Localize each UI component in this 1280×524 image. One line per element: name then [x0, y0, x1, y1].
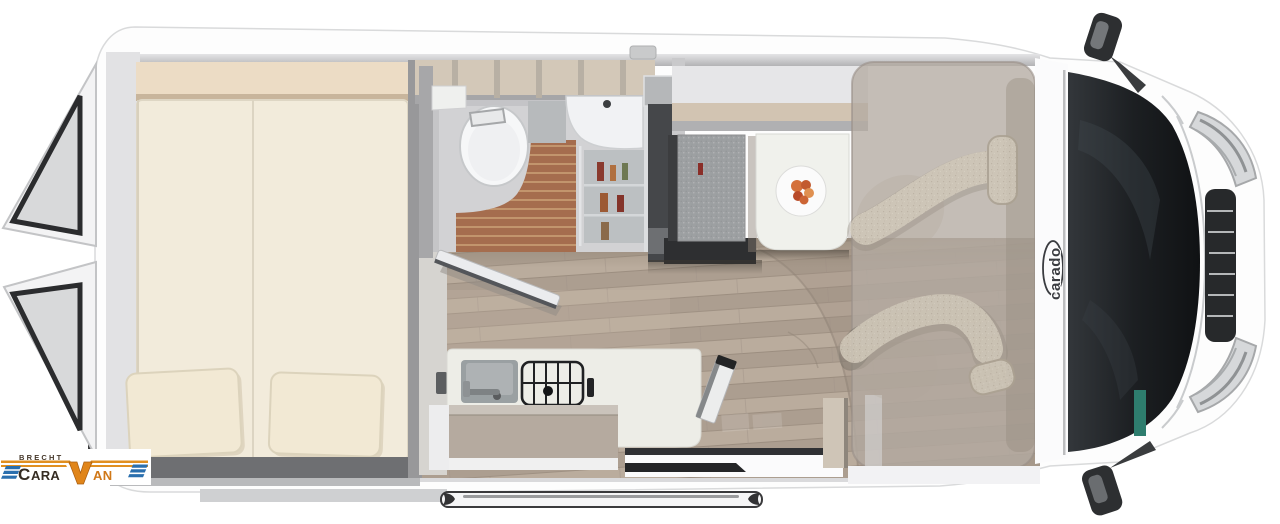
svg-text:carado: carado — [1047, 247, 1064, 300]
svg-text:AN: AN — [93, 468, 112, 483]
svg-text:ARA: ARA — [31, 468, 60, 483]
